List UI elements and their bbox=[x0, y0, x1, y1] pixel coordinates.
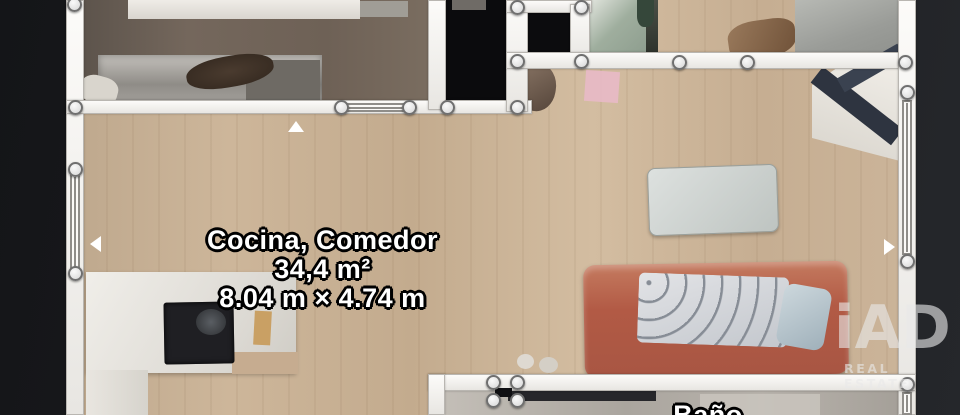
wall-node[interactable] bbox=[440, 100, 455, 115]
void-room-b bbox=[528, 12, 572, 54]
iad-subtitle: REAL ESTATE bbox=[844, 361, 960, 391]
window-top[interactable] bbox=[345, 103, 407, 112]
wall-top-band[interactable] bbox=[66, 100, 532, 114]
counter-notch-floor bbox=[232, 352, 298, 374]
wall-node[interactable] bbox=[334, 100, 349, 115]
floor-item-a bbox=[517, 354, 534, 369]
window-left[interactable] bbox=[70, 174, 80, 270]
wall-node[interactable] bbox=[900, 85, 915, 100]
bathroom-dark-strip bbox=[508, 390, 656, 401]
cutting-board bbox=[253, 311, 272, 346]
wall-node[interactable] bbox=[574, 0, 589, 15]
wall-node[interactable] bbox=[510, 54, 525, 69]
wall-topleft-right[interactable] bbox=[428, 0, 446, 110]
plant-dark bbox=[637, 0, 654, 27]
room-name: Baño bbox=[648, 401, 768, 415]
wall-node[interactable] bbox=[486, 375, 501, 390]
wall-node[interactable] bbox=[898, 55, 913, 70]
wall-node[interactable] bbox=[574, 54, 589, 69]
iad-logo: iAD bbox=[834, 297, 960, 359]
wall-node[interactable] bbox=[672, 55, 687, 70]
coffee-table bbox=[647, 164, 779, 236]
floor-item-b bbox=[539, 357, 558, 373]
room-name: Cocina, Comedor bbox=[150, 226, 495, 255]
wall-bathroom-left[interactable] bbox=[428, 374, 445, 415]
room-dimensions: 8.04 m × 4.74 m bbox=[150, 284, 495, 313]
pink-rug bbox=[584, 70, 620, 103]
window-right-bottom[interactable] bbox=[902, 392, 912, 415]
room-label-bano: Baño bbox=[648, 401, 768, 415]
wall-node[interactable] bbox=[510, 393, 525, 408]
wall-node[interactable] bbox=[510, 0, 525, 15]
sofa-blanket bbox=[637, 272, 789, 347]
wall-node[interactable] bbox=[486, 393, 501, 408]
wall-node[interactable] bbox=[68, 266, 83, 281]
wall-node[interactable] bbox=[402, 100, 417, 115]
window-right[interactable] bbox=[902, 100, 912, 255]
room-top-right-floor bbox=[795, 0, 898, 57]
wall-node[interactable] bbox=[900, 254, 915, 269]
wall-node[interactable] bbox=[510, 100, 525, 115]
void-room-a bbox=[446, 0, 507, 104]
iad-watermark: iAD REAL ESTATE bbox=[834, 297, 960, 391]
room-label-cocina-comedor: Cocina, Comedor 34,4 m² 8.04 m × 4.74 m bbox=[150, 226, 495, 313]
void-room-a-object bbox=[452, 0, 486, 10]
wall-node[interactable] bbox=[68, 162, 83, 177]
kitchen-counter-ext bbox=[86, 370, 148, 415]
room-area: 34,4 m² bbox=[150, 255, 495, 284]
wall-top-long[interactable] bbox=[506, 52, 916, 69]
wall-node[interactable] bbox=[68, 100, 83, 115]
floorplan-canvas[interactable]: Cocina, Comedor 34,4 m² 8.04 m × 4.74 m … bbox=[0, 0, 960, 415]
wall-node[interactable] bbox=[740, 55, 755, 70]
wall-node[interactable] bbox=[510, 375, 525, 390]
bed-white bbox=[128, 0, 360, 19]
